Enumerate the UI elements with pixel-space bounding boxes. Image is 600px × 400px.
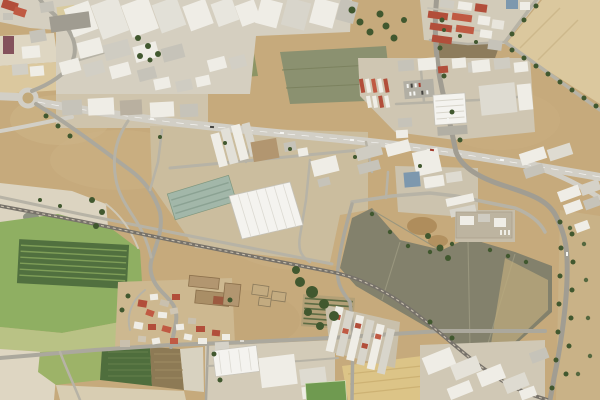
field-crop-rows — [17, 239, 129, 289]
field-strips — [38, 347, 204, 400]
truck-compound — [456, 212, 512, 238]
satellite-map-viewport[interactable] — [0, 0, 600, 400]
dirt-mound — [407, 217, 437, 235]
pitch-field — [305, 381, 346, 400]
parking-lot — [403, 79, 434, 100]
supermarket-ribbed-roof — [433, 93, 468, 136]
satellite-imagery — [0, 0, 600, 400]
warehouse-bottom-1 — [213, 345, 260, 376]
